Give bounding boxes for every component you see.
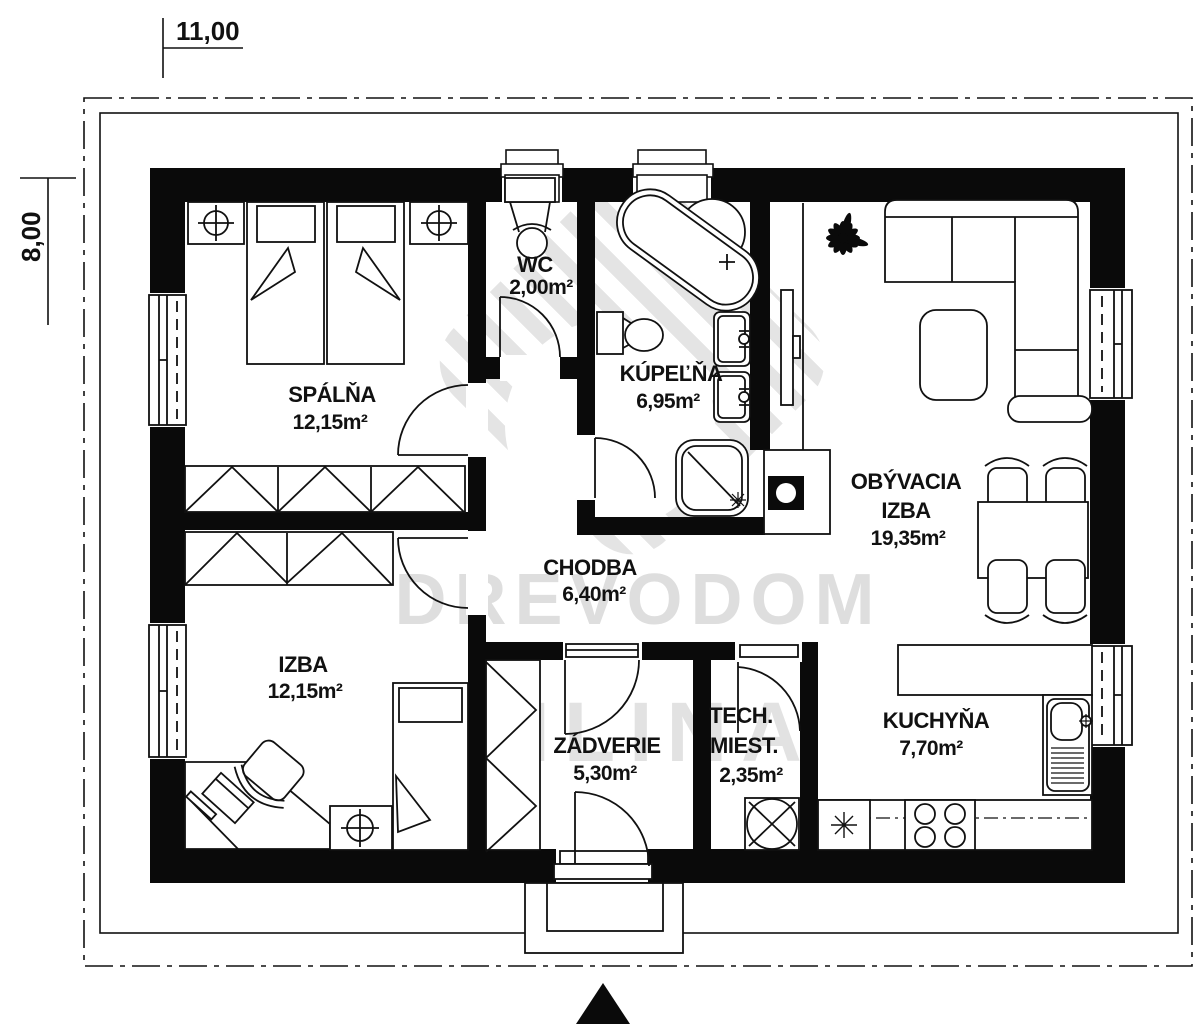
plant (826, 212, 869, 255)
nightstand-right (410, 202, 468, 244)
tv-cabinet (781, 203, 803, 450)
toilet-wc (505, 178, 555, 258)
dining-chair-bl (985, 560, 1029, 623)
door-izba (398, 538, 468, 608)
boiler (745, 798, 799, 850)
floor-plan: DREVODOM ŽILINA (0, 0, 1196, 1024)
sink-1 (714, 312, 750, 366)
wardrobe-izba (185, 532, 393, 585)
window-izba (149, 625, 186, 757)
shower (676, 440, 748, 516)
bed-izba (393, 683, 468, 850)
dining-chair-br (1043, 560, 1087, 623)
window-obyvacia (1090, 290, 1132, 398)
door-kupelna (595, 438, 655, 498)
bed-double-right (327, 202, 404, 364)
sofa (885, 200, 1092, 422)
door-wc (500, 297, 560, 357)
nightstand-left (188, 202, 244, 244)
kitchen-sink-unit (1043, 695, 1093, 795)
door-zadverie (565, 644, 639, 734)
wardrobe-spalna (185, 466, 465, 512)
nightstand-izba (330, 806, 392, 850)
entrance-arrow (576, 983, 630, 1024)
plan-drawing (0, 0, 1196, 1024)
coffee-table (920, 310, 987, 400)
fireplace (764, 450, 830, 534)
window-spalna (149, 295, 186, 425)
wardrobe-zadverie (486, 660, 540, 852)
window-kuchyna (1090, 646, 1132, 745)
door-spalna (398, 385, 468, 455)
entrance-porch (525, 883, 683, 953)
door-entrance (554, 792, 652, 879)
kitchen-counter-top (898, 645, 1092, 695)
kitchen-counter-bottom (818, 800, 1092, 850)
bed-double-left (247, 202, 324, 364)
sink-2 (714, 372, 750, 422)
toilet-kupelna (597, 312, 663, 354)
